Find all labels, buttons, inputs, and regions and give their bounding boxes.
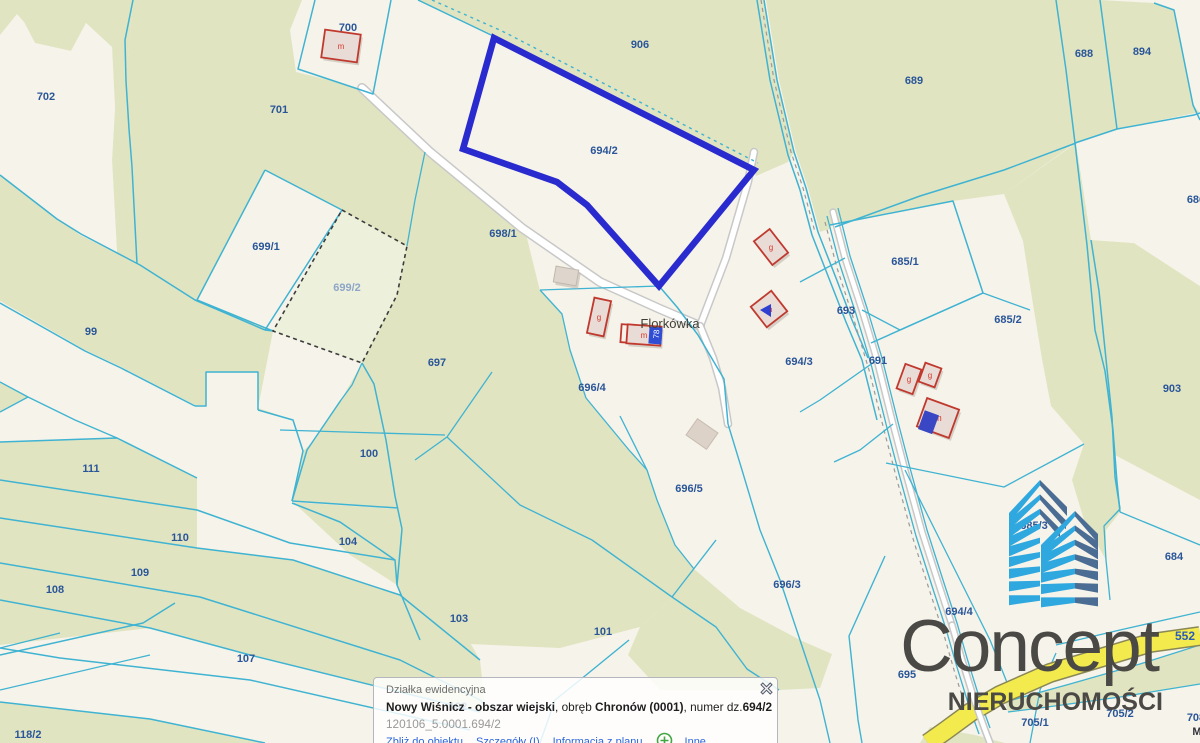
svg-text:104: 104 (339, 536, 358, 548)
svg-text:101: 101 (594, 626, 612, 638)
svg-text:Florkówka: Florkówka (640, 316, 700, 331)
svg-text:903: 903 (1163, 383, 1181, 395)
svg-text:694/2: 694/2 (590, 145, 618, 157)
svg-text:g: g (769, 243, 773, 252)
svg-text:701: 701 (270, 104, 288, 116)
svg-text:700: 700 (339, 22, 357, 34)
svg-text:906: 906 (631, 39, 649, 51)
svg-text:m: m (641, 331, 648, 340)
svg-text:g: g (597, 313, 601, 322)
svg-text:109: 109 (131, 567, 149, 579)
svg-text:702: 702 (37, 91, 55, 103)
svg-text:694/3: 694/3 (785, 356, 813, 368)
svg-text:688: 688 (1075, 48, 1093, 60)
svg-text:108: 108 (46, 584, 64, 596)
svg-text:693: 693 (837, 305, 855, 317)
svg-text:g: g (907, 375, 911, 384)
svg-text:697: 697 (428, 357, 446, 369)
svg-text:M: M (1192, 726, 1200, 738)
svg-text:684: 684 (1165, 551, 1184, 563)
svg-text:685/1: 685/1 (891, 256, 919, 268)
svg-text:118/2: 118/2 (15, 729, 42, 741)
svg-text:696/5: 696/5 (675, 483, 703, 495)
svg-text:Concept: Concept (900, 606, 1160, 687)
svg-text:685/2: 685/2 (994, 314, 1022, 326)
svg-text:107: 107 (237, 653, 255, 665)
svg-text:m: m (338, 42, 345, 51)
svg-text:705/1: 705/1 (1021, 717, 1049, 729)
svg-text:689: 689 (905, 75, 923, 87)
svg-text:696/4: 696/4 (578, 382, 606, 394)
svg-text:699/1: 699/1 (252, 241, 280, 253)
svg-text:100: 100 (360, 448, 378, 460)
svg-text:894: 894 (1133, 46, 1152, 58)
svg-text:111: 111 (82, 463, 99, 475)
svg-text:552: 552 (1175, 629, 1195, 643)
svg-text:g: g (928, 371, 932, 380)
svg-text:103: 103 (450, 613, 468, 625)
svg-text:686: 686 (1187, 194, 1200, 206)
svg-text:698/1: 698/1 (489, 228, 517, 240)
svg-text:NIERUCHOMOŚCI: NIERUCHOMOŚCI (948, 686, 1163, 716)
svg-text:691: 691 (869, 355, 887, 367)
svg-text:110: 110 (171, 532, 189, 544)
svg-text:708: 708 (1187, 712, 1200, 724)
svg-text:99: 99 (85, 326, 97, 338)
svg-text:699/2: 699/2 (333, 282, 361, 294)
svg-text:696/3: 696/3 (773, 579, 801, 591)
